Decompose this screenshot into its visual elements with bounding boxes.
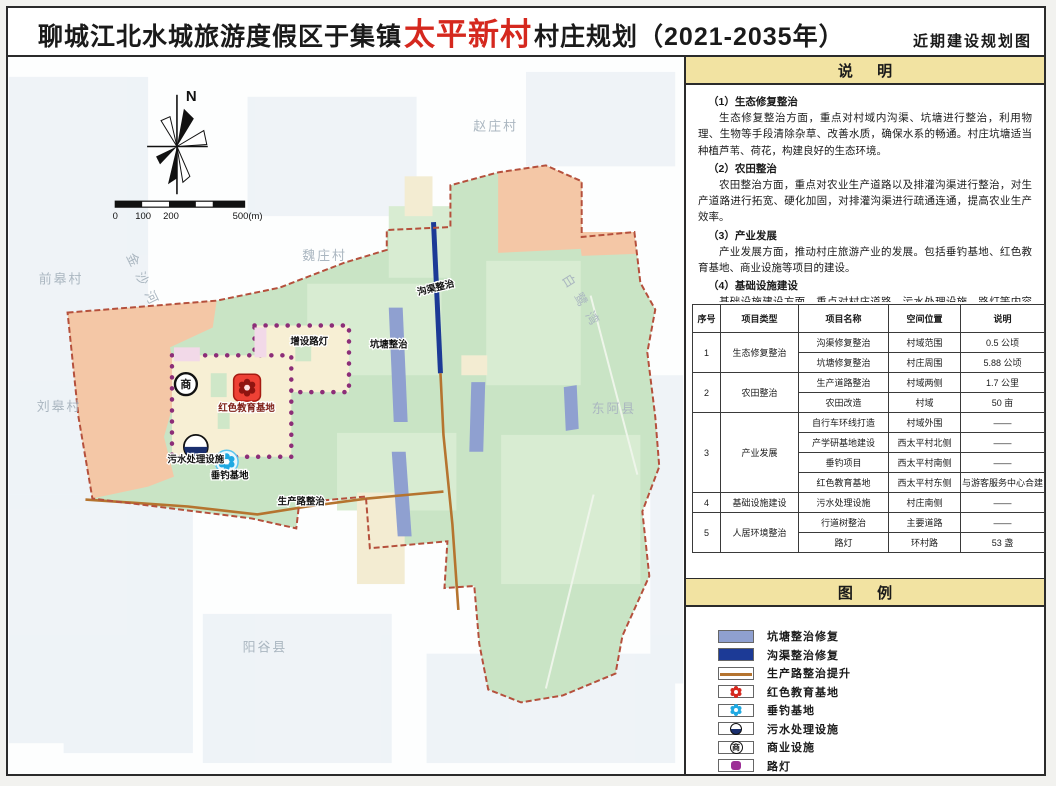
fishing-swatch [718, 704, 754, 717]
red-edu-swatch [718, 685, 754, 698]
annotation-road: 生产路整治 [278, 496, 326, 508]
pink-patch [255, 327, 267, 357]
cell-remark: 与游客服务中心合建 [961, 473, 1045, 493]
legend-label: 坑塘整治修复 [767, 628, 839, 644]
cell-location: 村域范围 [889, 333, 961, 353]
canal-swatch [718, 648, 754, 661]
cell-type: 基础设施建设 [721, 493, 799, 513]
annotation-lamps: 增设路灯 [290, 335, 328, 347]
cell-remark: 0.5 公顷 [961, 333, 1045, 353]
sewage-swatch [718, 722, 754, 735]
cell-no: 3 [693, 413, 721, 493]
streetlamp-icon [731, 761, 741, 770]
table-col-header: 项目名称 [799, 305, 889, 333]
cell-remark: 50 亩 [961, 393, 1045, 413]
info-panel: 说 明 （1）生态修复整治生态修复整治方面，重点对村域内沟渠、坑塘进行整治，利用… [684, 57, 1044, 774]
notes-header: 说 明 [686, 57, 1044, 85]
notes-text: （1）生态修复整治生态修复整治方面，重点对村域内沟渠、坑塘进行整治，利用物理、生… [686, 85, 1044, 302]
commercial-icon: 商 [730, 741, 743, 754]
table-col-header: 空间位置 [889, 305, 961, 333]
legend-item-sewage: 污水处理设施 [718, 720, 1044, 739]
legend-label: 污水处理设施 [767, 721, 839, 737]
table-col-header: 项目类型 [721, 305, 799, 333]
legend-label: 商业设施 [767, 739, 815, 755]
cell-location: 村庄周围 [889, 353, 961, 373]
salmon-area-northeast [498, 165, 636, 255]
cell-name: 红色教育基地 [799, 473, 889, 493]
legend-item-red-edu: 红色教育基地 [718, 683, 1044, 702]
cell-name: 污水处理设施 [799, 493, 889, 513]
place-zhaozhuang: 赵庄村 [473, 119, 518, 134]
red-education-base-icon [234, 374, 261, 401]
note-body-2: 农田整治方面，重点对农业生产道路以及排灌沟渠进行整治，对生产道路进行拓宽、硬化加… [698, 177, 1032, 226]
cell-remark: —— [961, 413, 1045, 433]
cell-location: 主要道路 [889, 513, 961, 533]
cell-remark: —— [961, 513, 1045, 533]
commercial-icon: 商 [175, 373, 197, 395]
cell-remark: —— [961, 433, 1045, 453]
north-arrow: N [147, 89, 208, 194]
legend-item-streetlamp: 路灯 [718, 757, 1044, 776]
cell-name: 行道树整治 [799, 513, 889, 533]
title-highlight: 太平新村 [404, 17, 532, 52]
streetlamp-swatch [718, 759, 754, 772]
cell-no: 5 [693, 513, 721, 553]
note-heading-2: （2）农田整治 [708, 161, 1032, 176]
legend-item-pond: 坑塘整治修复 [718, 627, 1044, 646]
note-body-4: 基础设施建设方面，重点对村庄道路、污水处理设施、路灯等内容进行完善。 [698, 294, 1032, 302]
cell-location: 西太平村东侧 [889, 473, 961, 493]
svg-text:N: N [186, 89, 197, 105]
scale-tick-500: 500(m) [233, 211, 263, 222]
legend-item-commercial: 商商业设施 [718, 738, 1044, 757]
svg-text:商: 商 [180, 377, 191, 391]
cell-name: 产学研基地建设 [799, 433, 889, 453]
title-suffix: 村庄规划（2021-2035年） [534, 23, 845, 51]
scale-tick-0: 0 [113, 211, 118, 222]
cell-location: 村域 [889, 393, 961, 413]
cell-location: 村域外围 [889, 413, 961, 433]
sewage-icon [730, 723, 742, 735]
place-weizhuang: 魏庄村 [302, 248, 347, 263]
plan-sheet: 聊城江北水城旅游度假区于集镇太平新村村庄规划（2021-2035年） 近期建设规… [6, 6, 1046, 776]
cell-type: 产业发展 [721, 413, 799, 493]
annotation-sewage: 污水处理设施 [168, 454, 225, 466]
project-table-wrap: 序号项目类型项目名称空间位置说明 1生态修复整治沟渠修复整治村域范围0.5 公顷… [686, 302, 1044, 568]
place-yanggu: 阳谷县 [243, 640, 288, 655]
cell-name: 自行车环线打造 [799, 413, 889, 433]
cell-name: 路灯 [799, 533, 889, 553]
legend-list: 坑塘整治修复沟渠整治修复生产路整治提升红色教育基地垂钓基地污水处理设施商商业设施… [686, 607, 1044, 775]
block-green-patch [218, 413, 230, 429]
table-row: 1生态修复整治沟渠修复整治村域范围0.5 公顷 [693, 333, 1045, 353]
place-liugao: 刘皋村 [37, 399, 82, 414]
pond-swatch [718, 630, 754, 643]
legend-label: 路灯 [767, 758, 791, 774]
cell-type: 农田整治 [721, 373, 799, 413]
cell-no: 4 [693, 493, 721, 513]
road-swatch [718, 667, 754, 680]
cell-location: 西太平村南侧 [889, 453, 961, 473]
note-heading-3: （3）产业发展 [708, 228, 1032, 243]
cell-remark: 5.88 公顷 [961, 353, 1045, 373]
cell-location: 西太平村北侧 [889, 433, 961, 453]
cell-location: 环村路 [889, 533, 961, 553]
title-bar: 聊城江北水城旅游度假区于集镇太平新村村庄规划（2021-2035年） 近期建设规… [8, 8, 1044, 57]
legend-label: 红色教育基地 [767, 684, 839, 700]
page-title: 聊城江北水城旅游度假区于集镇太平新村村庄规划（2021-2035年） [38, 9, 845, 54]
scale-tick-200: 200 [163, 211, 179, 222]
table-row: 2农田整治生产道路整治村域两侧1.7 公里 [693, 373, 1045, 393]
annotation-red-edu: 红色教育基地 [218, 402, 275, 414]
planning-map: 商 沟渠整治 坑塘整治 增设路灯 污水处理设施 垂钓基地 生产路整治 红色教育基… [8, 57, 684, 774]
cell-remark: 53 盏 [961, 533, 1045, 553]
table-col-header: 说明 [961, 305, 1045, 333]
scale-bar: 0 100 200 500(m) [113, 201, 263, 222]
table-col-header: 序号 [693, 305, 721, 333]
title-prefix: 聊城江北水城旅游度假区于集镇 [38, 23, 402, 51]
note-heading-4: （4）基础设施建设 [708, 278, 1032, 293]
commercial-swatch: 商 [718, 741, 754, 754]
note-heading-1: （1）生态修复整治 [708, 94, 1032, 109]
table-row: 5人居环境整治行道树整治主要道路—— [693, 513, 1045, 533]
cell-type: 生态修复整治 [721, 333, 799, 373]
legend-item-road: 生产路整治提升 [718, 664, 1044, 683]
cell-remark: —— [961, 453, 1045, 473]
cell-remark: —— [961, 493, 1045, 513]
cell-name: 农田改造 [799, 393, 889, 413]
cell-name: 生产道路整治 [799, 373, 889, 393]
pink-patch [174, 347, 200, 361]
legend-header: 图 例 [686, 578, 1044, 607]
note-body-3: 产业发展方面，推动村庄旅游产业的发展。包括垂钓基地、红色教育基地、商业设施等项目… [698, 244, 1032, 277]
place-qiangao: 前皋村 [39, 272, 84, 287]
legend-label: 生产路整治提升 [767, 665, 851, 681]
scale-tick-100: 100 [135, 211, 151, 222]
legend-label: 垂钓基地 [767, 702, 815, 718]
cell-name: 沟渠修复整治 [799, 333, 889, 353]
project-table: 序号项目类型项目名称空间位置说明 1生态修复整治沟渠修复整治村域范围0.5 公顷… [692, 304, 1045, 553]
annotation-fishing: 垂钓基地 [211, 470, 249, 482]
panel-spacer [686, 568, 1044, 578]
map-sheet-name: 近期建设规划图 [913, 30, 1032, 51]
cell-name: 垂钓项目 [799, 453, 889, 473]
cell-no: 1 [693, 333, 721, 373]
table-row: 3产业发展自行车环线打造村域外围—— [693, 413, 1045, 433]
legend-item-fishing: 垂钓基地 [718, 701, 1044, 720]
table-header-row: 序号项目类型项目名称空间位置说明 [693, 305, 1045, 333]
legend-label: 沟渠整治修复 [767, 647, 839, 663]
cell-location: 村庄南侧 [889, 493, 961, 513]
cell-no: 2 [693, 373, 721, 413]
cell-location: 村域两侧 [889, 373, 961, 393]
note-body-1: 生态修复整治方面，重点对村域内沟渠、坑塘进行整治，利用物理、生物等手段清除杂草、… [698, 110, 1032, 159]
place-donge: 东阿县 [592, 401, 637, 416]
road-line [720, 673, 752, 676]
legend-item-canal: 沟渠整治修复 [718, 646, 1044, 665]
cell-type: 人居环境整治 [721, 513, 799, 553]
table-row: 4基础设施建设污水处理设施村庄南侧—— [693, 493, 1045, 513]
cell-name: 坑塘修复整治 [799, 353, 889, 373]
block-green-patch [211, 373, 227, 397]
cell-remark: 1.7 公里 [961, 373, 1045, 393]
annotation-pond: 坑塘整治 [370, 338, 408, 350]
